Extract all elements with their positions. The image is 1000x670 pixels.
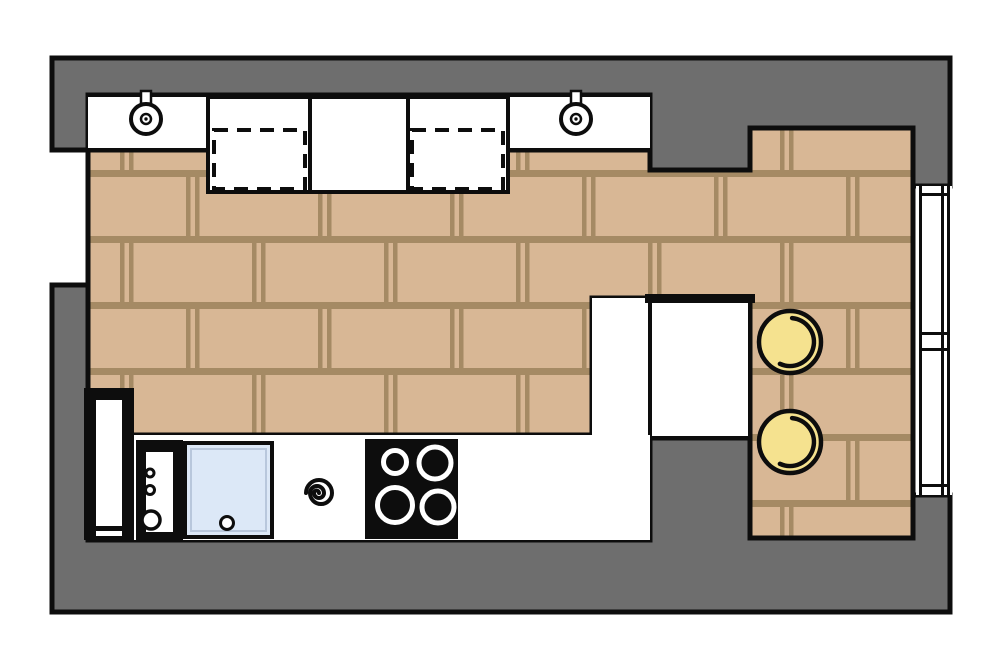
- window-tick: [919, 484, 950, 487]
- table-top: [650, 300, 750, 438]
- oven-knob: [146, 486, 155, 495]
- window-tick: [919, 193, 950, 196]
- window-glass-line: [947, 186, 950, 495]
- window-tick: [919, 348, 950, 351]
- table-top-edge: [645, 294, 755, 303]
- oven-unit: [136, 440, 183, 540]
- oven-knob: [142, 511, 160, 529]
- window-inner-frame-line: [919, 186, 922, 495]
- floor-plan-canvas: [0, 0, 1000, 670]
- upper-deep-cabinet-block: [208, 97, 508, 192]
- stool-seat: [759, 311, 821, 373]
- kitchen-floor-plan: [0, 0, 1000, 670]
- window-tick: [919, 332, 950, 335]
- fixture-center-dot: [144, 117, 147, 120]
- tall-unit: [84, 388, 134, 540]
- stool-seat: [759, 411, 821, 473]
- sink-drain: [221, 517, 234, 530]
- fixture-center-dot: [574, 117, 577, 120]
- window: [916, 186, 952, 495]
- tall-unit-slot: [96, 531, 122, 536]
- window-glass-line: [941, 186, 944, 495]
- oven-knob: [146, 469, 154, 477]
- stool: [759, 411, 821, 473]
- cooktop: [365, 439, 458, 539]
- sink: [185, 443, 272, 537]
- stool: [759, 311, 821, 373]
- table-peninsula: [645, 294, 755, 438]
- tall-unit-interior: [96, 400, 122, 526]
